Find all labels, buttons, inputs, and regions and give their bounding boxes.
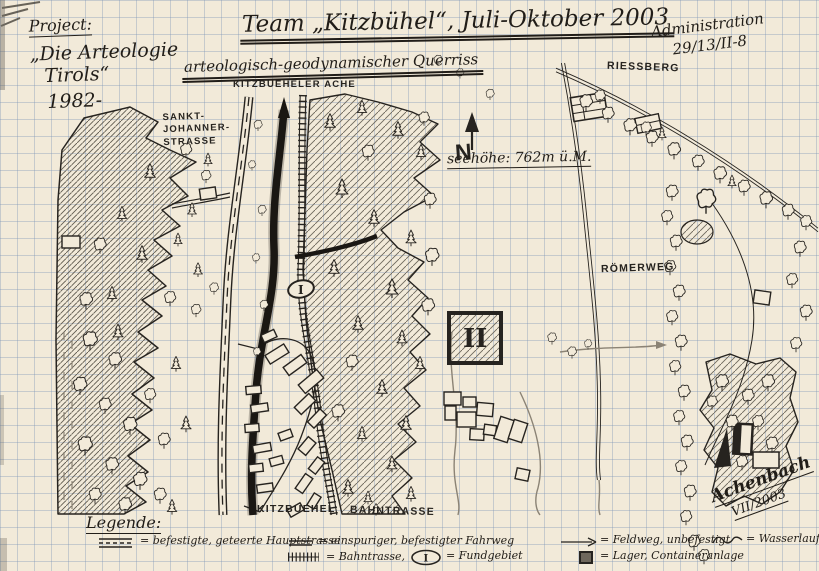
find-area-symbol: I: [410, 549, 442, 566]
building: [245, 424, 260, 433]
tree-icon: [667, 311, 678, 326]
tree-icon: [258, 205, 266, 216]
tree-icon: [254, 120, 262, 131]
tree-icon: [201, 170, 211, 183]
building: [753, 290, 771, 305]
tree-icon: [252, 254, 259, 264]
tree-icon: [760, 192, 773, 209]
tree-icon: [422, 299, 435, 316]
building: [199, 187, 216, 200]
tree-icon: [602, 107, 614, 123]
building: [294, 393, 315, 414]
label-railway: BAHNTRASSE: [350, 504, 435, 518]
tree-icon: [194, 263, 203, 277]
sketch-map-page: II I N Project: „Die Arteologie Tirols“ …: [0, 0, 819, 571]
tree-icon: [791, 338, 802, 353]
legend-camp: = Lager, Containeranlage: [600, 549, 744, 562]
tree-icon: [681, 435, 693, 451]
tree-icon: [191, 304, 201, 317]
tree-icon: [801, 216, 812, 231]
building: [269, 455, 284, 466]
svg-text:I: I: [424, 554, 429, 565]
building: [246, 385, 262, 394]
tree-icon: [584, 340, 591, 350]
find-area-marker: I: [298, 283, 304, 297]
camp-symbol: [578, 550, 595, 565]
building: [265, 344, 289, 364]
tree-icon: [675, 335, 687, 351]
mountain-slope-hatch: [56, 107, 196, 514]
building: [278, 429, 293, 441]
tree-icon: [666, 185, 678, 201]
fahrweg-road: [561, 63, 600, 480]
tree-icon: [670, 235, 682, 251]
building: [463, 397, 476, 407]
legend-title: Legende:: [86, 513, 161, 532]
tree-icon: [684, 485, 696, 501]
tree-icon: [673, 285, 685, 301]
tree-blob-hatch: [681, 220, 713, 244]
legend-field-path: = Feldweg, unbefestigt: [600, 533, 730, 546]
tree-icon: [692, 155, 704, 171]
building: [457, 412, 476, 427]
label-town: KITZBUEHEL: [257, 503, 336, 515]
project-line2: Tirols“: [44, 60, 179, 87]
building: [476, 402, 493, 416]
buildings-group: [62, 187, 771, 517]
tree-icon: [782, 204, 794, 220]
tree-icon: [154, 488, 166, 504]
tree-icon: [674, 411, 685, 426]
tree-icon: [165, 292, 176, 307]
building: [470, 429, 485, 441]
tree-icon: [210, 283, 219, 295]
tree-icon: [800, 305, 812, 321]
project-title: Project:: [28, 14, 92, 37]
tree-icon: [424, 193, 436, 209]
tree-icon: [145, 389, 156, 404]
fund-site-compound: II: [449, 313, 501, 363]
building: [515, 468, 530, 481]
building: [445, 406, 456, 420]
label-river: KITZBUEHELER ACHE: [233, 79, 356, 90]
tree-icon: [794, 241, 806, 257]
legend-find-area: = Fundgebiet: [446, 549, 523, 562]
tree-icon: [248, 161, 255, 171]
tree-icon: [646, 131, 658, 147]
building: [283, 354, 307, 375]
project-line3: 1982-: [47, 86, 180, 113]
legend-single-road: = einspuriger, befestigter Fahrweg: [318, 534, 514, 547]
tree-icon: [676, 461, 687, 476]
single-road-symbol: [288, 537, 314, 549]
field-path-symbol: [560, 536, 598, 548]
tree-icon: [681, 511, 692, 526]
building: [257, 483, 274, 493]
railway-symbol: [287, 550, 321, 564]
label-roemerweg: RÖMERWEG: [601, 261, 675, 276]
tree-icon: [787, 274, 798, 289]
tree-icon: [134, 472, 147, 490]
tree-icon: [568, 347, 577, 359]
tree-icon: [728, 175, 736, 188]
tree-icon: [171, 356, 181, 371]
forest-hatch-center: [303, 94, 440, 514]
label-street: SANKT- JOHANNER- STRASSE: [162, 110, 231, 149]
tree-icon: [624, 119, 637, 136]
tree-icon: [697, 189, 716, 214]
main-road-symbol: [98, 536, 134, 550]
legend-railway: = Bahntrasse,: [326, 550, 405, 563]
tree-icon: [662, 211, 673, 226]
legend-stream: = Wasserlauf: [746, 532, 819, 545]
fund-site-marker: II: [463, 324, 487, 354]
label-riessberg: RIESSBERG: [607, 60, 680, 75]
river-flow-arrow: [278, 97, 290, 118]
tree-icon: [426, 248, 439, 266]
tree-icon: [548, 333, 557, 345]
tree-icon: [167, 499, 177, 514]
project-block: Project: „Die Arteologie Tirols“ 1982-: [28, 11, 180, 113]
tree-icon: [670, 361, 681, 376]
tree-icon: [204, 153, 212, 166]
tree-icon: [486, 89, 494, 100]
tree-icon: [158, 433, 170, 449]
elevation-note: seehöhe: 762m ü.M.: [447, 149, 592, 168]
building: [295, 474, 313, 494]
building: [251, 403, 269, 413]
tree-icon: [181, 416, 191, 432]
building: [62, 236, 80, 248]
tree-icon: [406, 486, 416, 501]
building: [444, 392, 461, 405]
tree-icon: [668, 143, 681, 160]
field-path-arrow: [656, 341, 667, 349]
stream-symbol: [712, 534, 744, 548]
tree-icon: [738, 180, 750, 196]
tree-icon: [174, 233, 182, 246]
tree-icon: [714, 167, 727, 184]
main-road: [222, 97, 249, 515]
building: [249, 463, 264, 472]
tree-icon: [406, 230, 416, 246]
tree-icon: [678, 385, 690, 401]
